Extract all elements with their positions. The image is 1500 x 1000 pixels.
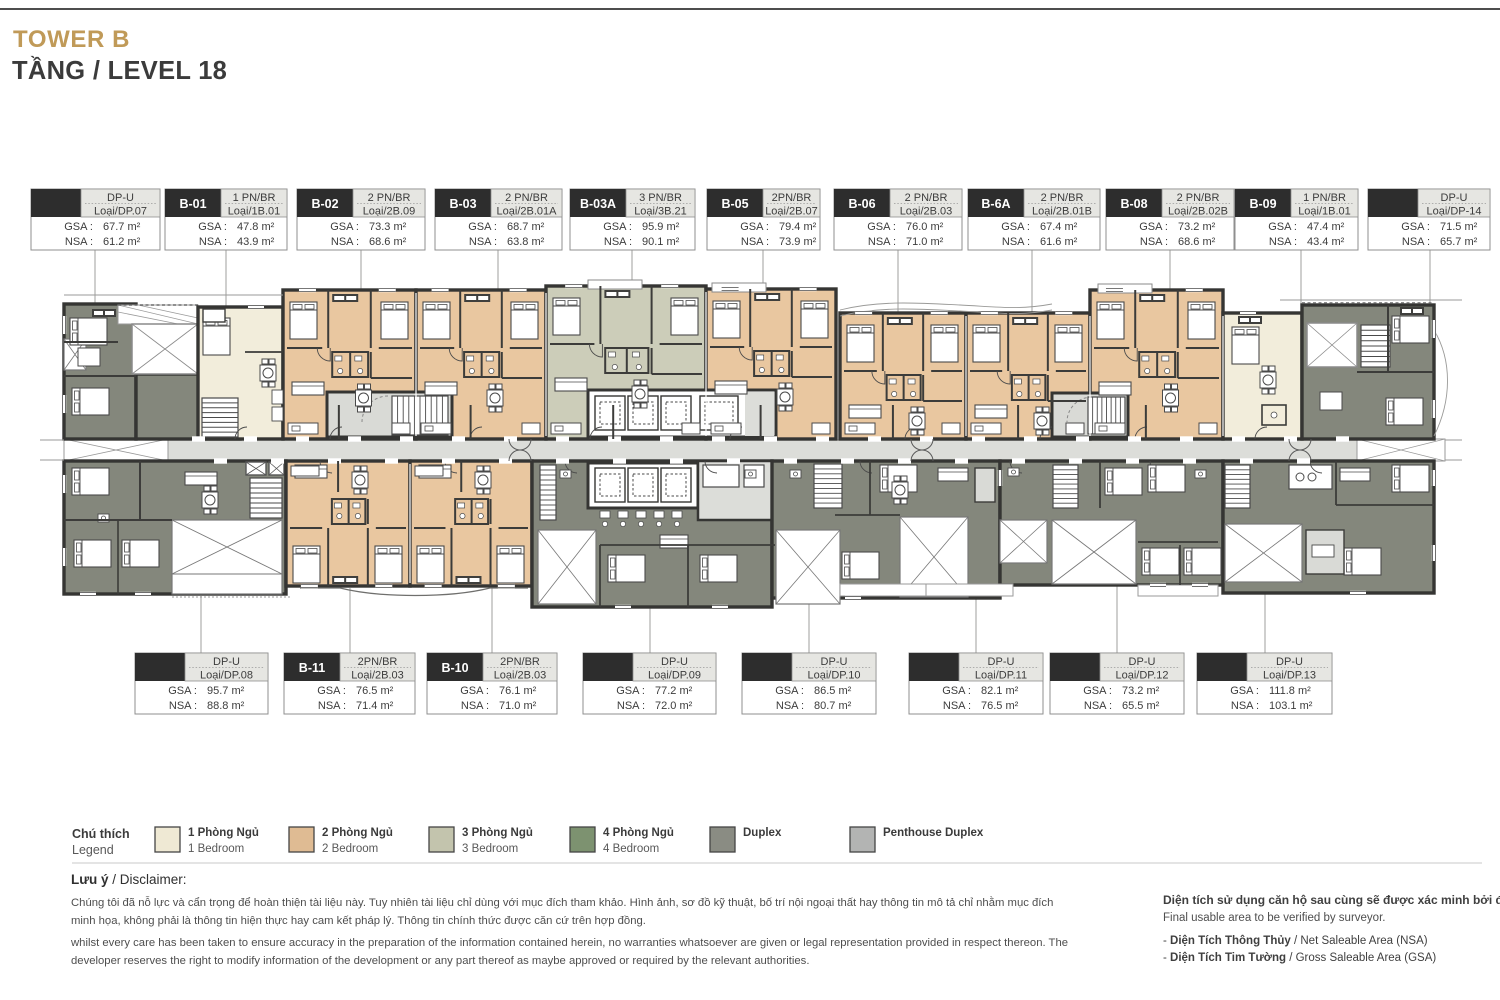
svg-text:DP-U: DP-U xyxy=(1276,656,1303,668)
svg-text:NSA :: NSA : xyxy=(65,236,93,248)
svg-text:3 Phòng Ngủ: 3 Phòng Ngủ xyxy=(462,827,533,839)
svg-text:65.7 m²: 65.7 m² xyxy=(1440,236,1478,248)
svg-text:NSA :: NSA : xyxy=(1084,700,1112,712)
svg-text:NSA :: NSA : xyxy=(1002,236,1030,248)
svg-text:95.7 m²: 95.7 m² xyxy=(207,685,245,697)
svg-text:DP-U: DP-U xyxy=(107,192,134,204)
svg-text:61.6 m²: 61.6 m² xyxy=(1040,236,1078,248)
svg-text:TẦNG / LEVEL 18: TẦNG / LEVEL 18 xyxy=(12,56,227,85)
svg-text:73.2 m²: 73.2 m² xyxy=(1178,221,1216,233)
svg-text:GSA :: GSA : xyxy=(1268,221,1297,233)
svg-text:67.4 m²: 67.4 m² xyxy=(1040,221,1078,233)
svg-text:1 PN/BR: 1 PN/BR xyxy=(1303,192,1346,204)
svg-text:Loại/DP-14: Loại/DP-14 xyxy=(1426,206,1481,218)
svg-text:NSA :: NSA : xyxy=(1269,236,1297,248)
svg-text:minh họa, không phải là thông: minh họa, không phải là thông tin hiện t… xyxy=(71,915,646,927)
svg-text:68.6 m²: 68.6 m² xyxy=(369,236,407,248)
svg-text:43.9 m²: 43.9 m² xyxy=(237,236,275,248)
svg-text:88.8 m²: 88.8 m² xyxy=(207,700,245,712)
svg-text:65.5 m²: 65.5 m² xyxy=(1122,700,1160,712)
svg-text:1 PN/BR: 1 PN/BR xyxy=(233,192,276,204)
svg-text:77.2 m²: 77.2 m² xyxy=(655,685,693,697)
svg-text:Loại/DP.09: Loại/DP.09 xyxy=(648,670,701,682)
svg-text:GSA :: GSA : xyxy=(942,685,971,697)
svg-text:47.4 m²: 47.4 m² xyxy=(1307,221,1345,233)
svg-text:2 PN/BR: 2 PN/BR xyxy=(1041,192,1084,204)
svg-text:TOWER B: TOWER B xyxy=(13,26,130,53)
svg-text:NSA :: NSA : xyxy=(1140,236,1168,248)
svg-text:Duplex: Duplex xyxy=(743,827,782,839)
svg-text:B-03: B-03 xyxy=(449,197,476,211)
svg-text:2 Phòng Ngủ: 2 Phòng Ngủ xyxy=(322,827,393,839)
svg-text:71.0 m²: 71.0 m² xyxy=(906,236,944,248)
svg-text:B-03A: B-03A xyxy=(580,197,616,211)
svg-text:Loại/DP.10: Loại/DP.10 xyxy=(807,670,860,682)
svg-text:GSA :: GSA : xyxy=(740,221,769,233)
svg-text:4 Phòng Ngủ: 4 Phòng Ngủ xyxy=(603,827,674,839)
svg-text:1 Bedroom: 1 Bedroom xyxy=(188,843,244,855)
svg-text:2 PN/BR: 2 PN/BR xyxy=(905,192,948,204)
svg-text:B-09: B-09 xyxy=(1249,197,1276,211)
svg-text:DP-U: DP-U xyxy=(661,656,688,668)
svg-text:B-10: B-10 xyxy=(441,661,468,675)
svg-text:NSA :: NSA : xyxy=(617,700,645,712)
svg-text:GSA :: GSA : xyxy=(330,221,359,233)
svg-text:NSA :: NSA : xyxy=(1402,236,1430,248)
svg-text:Loại/DP.11: Loại/DP.11 xyxy=(975,670,1027,682)
svg-text:Loại/2B.09: Loại/2B.09 xyxy=(363,206,416,218)
svg-text:NSA :: NSA : xyxy=(199,236,227,248)
svg-text:Loại/2B.03: Loại/2B.03 xyxy=(494,670,547,682)
svg-text:NSA :: NSA : xyxy=(604,236,632,248)
svg-text:GSA :: GSA : xyxy=(616,685,645,697)
svg-text:Loại/DP.13: Loại/DP.13 xyxy=(1263,670,1316,682)
svg-text:61.2 m²: 61.2 m² xyxy=(103,236,141,248)
svg-text:43.4 m²: 43.4 m² xyxy=(1307,236,1345,248)
svg-text:90.1 m²: 90.1 m² xyxy=(642,236,680,248)
svg-text:79.4 m²: 79.4 m² xyxy=(779,221,817,233)
svg-text:Chúng tôi đã nỗ lực và cẩn trọ: Chúng tôi đã nỗ lực và cẩn trọng để hoàn… xyxy=(71,896,1053,909)
svg-text:2 PN/BR: 2 PN/BR xyxy=(505,192,548,204)
svg-text:developer reserves the right t: developer reserves the right to modify i… xyxy=(71,955,809,967)
svg-text:B-11: B-11 xyxy=(299,661,325,675)
svg-text:GSA :: GSA : xyxy=(198,221,227,233)
svg-text:47.8 m²: 47.8 m² xyxy=(237,221,275,233)
svg-text:GSA :: GSA : xyxy=(1139,221,1168,233)
svg-text:72.0 m²: 72.0 m² xyxy=(655,700,693,712)
svg-text:Loại/2B.01B: Loại/2B.01B xyxy=(1032,206,1092,218)
svg-text:NSA :: NSA : xyxy=(943,700,971,712)
svg-text:B-02: B-02 xyxy=(311,197,338,211)
svg-text:2PN/BR: 2PN/BR xyxy=(500,656,540,668)
svg-text:GSA :: GSA : xyxy=(775,685,804,697)
svg-text:Legend: Legend xyxy=(72,843,114,857)
svg-text:- Diện Tích Thông Thủy / Net: - Diện Tích Thông Thủy / Net Saleable Ar… xyxy=(1163,935,1428,947)
svg-text:DP-U: DP-U xyxy=(988,656,1015,668)
svg-text:GSA :: GSA : xyxy=(460,685,489,697)
svg-text:71.0 m²: 71.0 m² xyxy=(499,700,537,712)
svg-text:NSA :: NSA : xyxy=(741,236,769,248)
svg-text:- Diện Tích Tim Tường / Gross: - Diện Tích Tim Tường / Gross Saleable A… xyxy=(1163,952,1436,964)
svg-text:GSA :: GSA : xyxy=(168,685,197,697)
svg-text:95.9 m²: 95.9 m² xyxy=(642,221,680,233)
svg-text:Chú thích: Chú thích xyxy=(72,827,130,841)
svg-text:NSA :: NSA : xyxy=(169,700,197,712)
svg-text:B-06: B-06 xyxy=(848,197,875,211)
svg-text:DP-U: DP-U xyxy=(1129,656,1156,668)
svg-text:GSA :: GSA : xyxy=(317,685,346,697)
svg-text:GSA :: GSA : xyxy=(468,221,497,233)
svg-text:GSA :: GSA : xyxy=(867,221,896,233)
svg-text:86.5 m²: 86.5 m² xyxy=(814,685,852,697)
svg-text:Final usable area to be verifi: Final usable area to be verified by surv… xyxy=(1163,912,1385,924)
svg-text:Diện tích sử dụng căn hộ sau c: Diện tích sử dụng căn hộ sau cùng sẽ đượ… xyxy=(1163,893,1500,907)
svg-text:1 Phòng Ngủ: 1 Phòng Ngủ xyxy=(188,827,259,839)
svg-text:B-08: B-08 xyxy=(1120,197,1147,211)
svg-text:GSA :: GSA : xyxy=(603,221,632,233)
svg-text:80.7 m²: 80.7 m² xyxy=(814,700,852,712)
svg-text:2 PN/BR: 2 PN/BR xyxy=(368,192,411,204)
svg-text:NSA :: NSA : xyxy=(776,700,804,712)
svg-text:3 Bedroom: 3 Bedroom xyxy=(462,843,518,855)
svg-text:Loại/1B.01: Loại/1B.01 xyxy=(228,206,281,218)
svg-text:GSA :: GSA : xyxy=(1230,685,1259,697)
svg-text:68.6 m²: 68.6 m² xyxy=(1178,236,1216,248)
svg-text:Loại/DP.08: Loại/DP.08 xyxy=(200,670,253,682)
svg-text:Loại/2B.03: Loại/2B.03 xyxy=(900,206,953,218)
svg-text:Lưu ý / Disclaimer:: Lưu ý / Disclaimer: xyxy=(71,872,187,887)
svg-text:76.1 m²: 76.1 m² xyxy=(499,685,537,697)
svg-text:Loại/DP.07: Loại/DP.07 xyxy=(94,206,147,218)
svg-text:73.2 m²: 73.2 m² xyxy=(1122,685,1160,697)
svg-text:Loại/2B.02B: Loại/2B.02B xyxy=(1168,206,1228,218)
svg-text:Penthouse Duplex: Penthouse Duplex xyxy=(883,827,984,839)
svg-text:DP-U: DP-U xyxy=(1441,192,1468,204)
svg-text:Loại/2B.03: Loại/2B.03 xyxy=(351,670,404,682)
svg-text:2 PN/BR: 2 PN/BR xyxy=(1177,192,1220,204)
svg-text:73.9 m²: 73.9 m² xyxy=(779,236,817,248)
svg-text:76.0 m²: 76.0 m² xyxy=(906,221,944,233)
svg-text:4 Bedroom: 4 Bedroom xyxy=(603,843,659,855)
svg-text:2PN/BR: 2PN/BR xyxy=(772,192,812,204)
svg-text:whilst every care has been tak: whilst every care has been taken to ensu… xyxy=(70,937,1068,949)
svg-text:73.3 m²: 73.3 m² xyxy=(369,221,407,233)
svg-text:GSA :: GSA : xyxy=(1401,221,1430,233)
svg-text:111.8 m²: 111.8 m² xyxy=(1269,685,1311,697)
svg-text:76.5 m²: 76.5 m² xyxy=(356,685,394,697)
svg-text:3 PN/BR: 3 PN/BR xyxy=(639,192,682,204)
svg-text:Loại/2B.01A: Loại/2B.01A xyxy=(497,206,558,218)
svg-text:Loại/DP.12: Loại/DP.12 xyxy=(1115,670,1168,682)
svg-text:DP-U: DP-U xyxy=(821,656,848,668)
svg-text:NSA :: NSA : xyxy=(469,236,497,248)
svg-text:NSA :: NSA : xyxy=(318,700,346,712)
svg-text:NSA :: NSA : xyxy=(868,236,896,248)
svg-text:2PN/BR: 2PN/BR xyxy=(358,656,398,668)
svg-text:B-6A: B-6A xyxy=(981,197,1010,211)
svg-text:Loại/3B.21: Loại/3B.21 xyxy=(634,206,687,218)
svg-text:67.7 m²: 67.7 m² xyxy=(103,221,141,233)
svg-text:2 Bedroom: 2 Bedroom xyxy=(322,843,378,855)
svg-text:GSA :: GSA : xyxy=(1001,221,1030,233)
svg-text:GSA :: GSA : xyxy=(64,221,93,233)
svg-text:103.1 m²: 103.1 m² xyxy=(1269,700,1313,712)
svg-text:68.7 m²: 68.7 m² xyxy=(507,221,545,233)
svg-text:NSA :: NSA : xyxy=(331,236,359,248)
svg-text:76.5 m²: 76.5 m² xyxy=(981,700,1019,712)
svg-text:B-01: B-01 xyxy=(179,197,206,211)
svg-text:DP-U: DP-U xyxy=(213,656,240,668)
svg-text:NSA :: NSA : xyxy=(1231,700,1259,712)
svg-text:NSA :: NSA : xyxy=(461,700,489,712)
svg-text:63.8 m²: 63.8 m² xyxy=(507,236,545,248)
svg-text:71.4 m²: 71.4 m² xyxy=(356,700,394,712)
svg-text:71.5 m²: 71.5 m² xyxy=(1440,221,1478,233)
svg-text:B-05: B-05 xyxy=(721,197,748,211)
svg-text:Loại/2B.07: Loại/2B.07 xyxy=(765,206,818,218)
svg-text:82.1 m²: 82.1 m² xyxy=(981,685,1019,697)
svg-text:Loại/1B.01: Loại/1B.01 xyxy=(1298,206,1351,218)
svg-text:GSA :: GSA : xyxy=(1083,685,1112,697)
